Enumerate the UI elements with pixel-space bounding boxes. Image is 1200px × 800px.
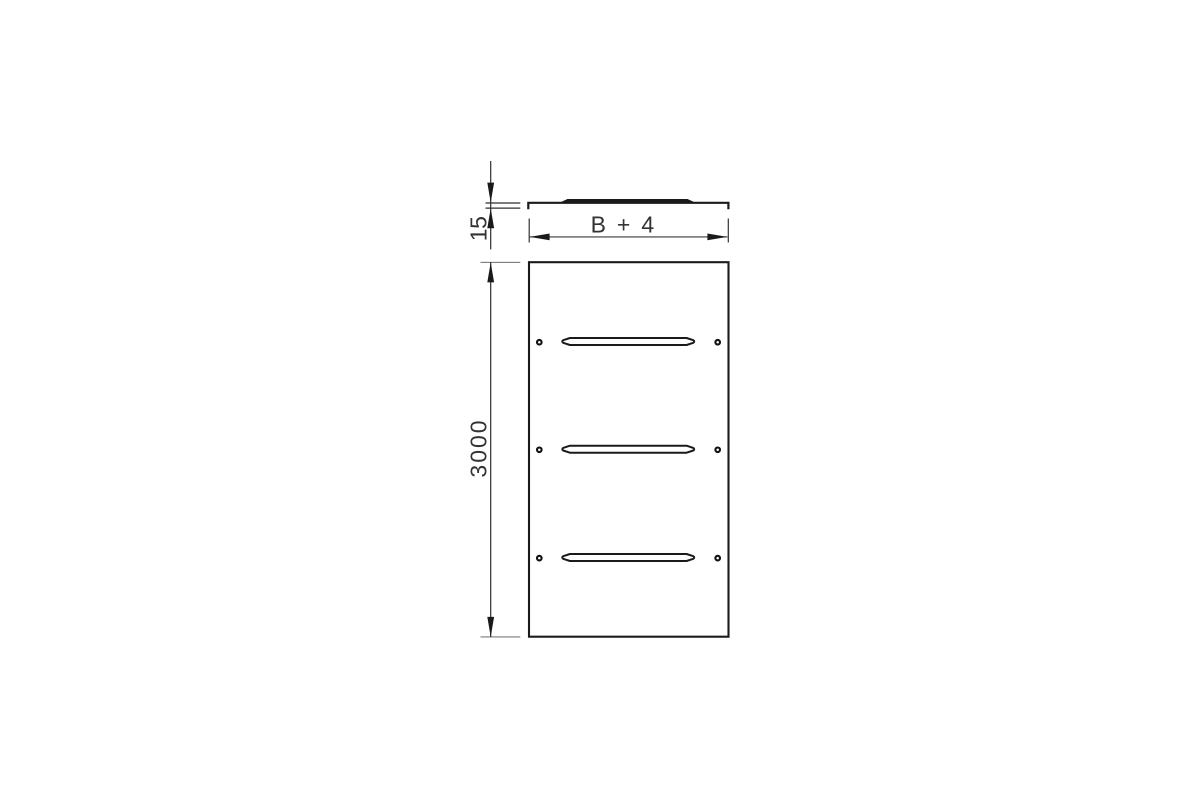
svg-text:15: 15	[466, 217, 492, 242]
svg-text:3000: 3000	[465, 418, 491, 477]
svg-text:B + 4: B + 4	[591, 212, 657, 238]
